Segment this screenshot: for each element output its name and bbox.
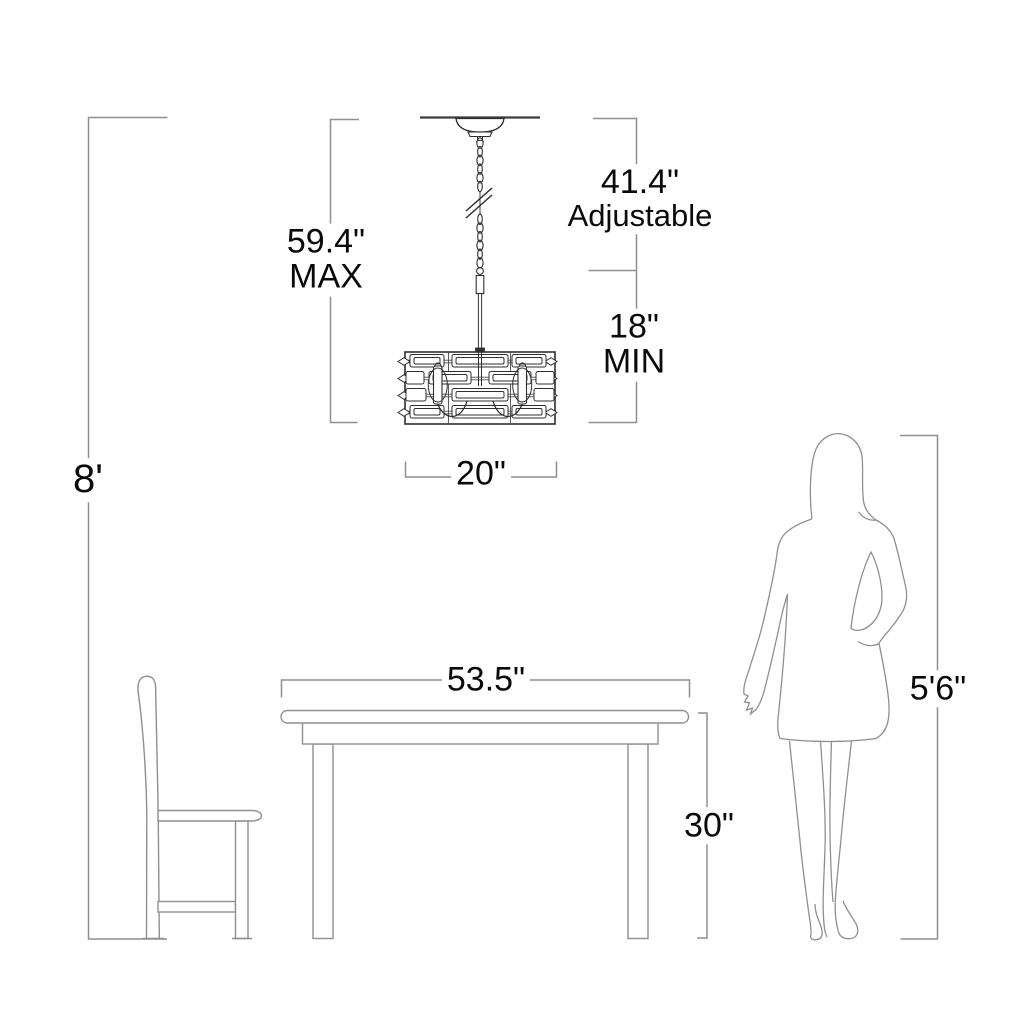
label-adjustable-qualifier: Adjustable [568,201,713,233]
chandelier-body [398,352,557,424]
label-table-height: 30" [679,807,739,844]
label-table-width: 53.5" [442,661,530,698]
label-ceiling-height: 8' [68,458,108,502]
label-fixture-max-value: 59.4" [287,225,365,260]
woman-feet [811,901,858,940]
woman-arm-gap [851,552,882,630]
chair-back-post [138,676,159,938]
table-leg-right [628,744,648,939]
table-top [281,711,689,724]
label-adjustable-value: 41.4" [568,165,713,200]
diagram-linework [0,0,1024,1024]
woman-torso-arms-dress [744,519,907,742]
label-min-qualifier: MIN [603,345,665,380]
length-break-icon [466,188,492,218]
label-fixture-width: 20" [451,455,511,492]
chandelier-downrod [476,268,485,354]
chair-front-leg [236,821,249,939]
woman-head-hair [810,434,876,521]
table-leg-left [313,744,333,939]
label-person-height: 5'6" [905,670,971,707]
label-min-value: 18" [603,310,665,345]
chair-seat [158,811,262,822]
label-adjustable: 41.4" Adjustable [563,164,718,234]
dimension-diagram: 8' 59.4" MAX 41.4" Adjustable 18" MIN 20… [0,0,1024,1024]
label-fixture-max-qualifier: MAX [287,260,365,295]
label-min: 18" MIN [598,309,670,382]
woman-hip-hand-crease [858,642,880,646]
label-fixture-max: 59.4" MAX [282,224,370,297]
chair-stretcher [158,902,236,913]
chandelier-canopy [456,119,504,141]
table-apron [303,723,659,745]
woman-silhouette [744,434,907,940]
side-chair [138,676,262,938]
woman-legs [790,741,852,937]
chandelier [398,119,557,425]
dining-table [281,711,689,939]
